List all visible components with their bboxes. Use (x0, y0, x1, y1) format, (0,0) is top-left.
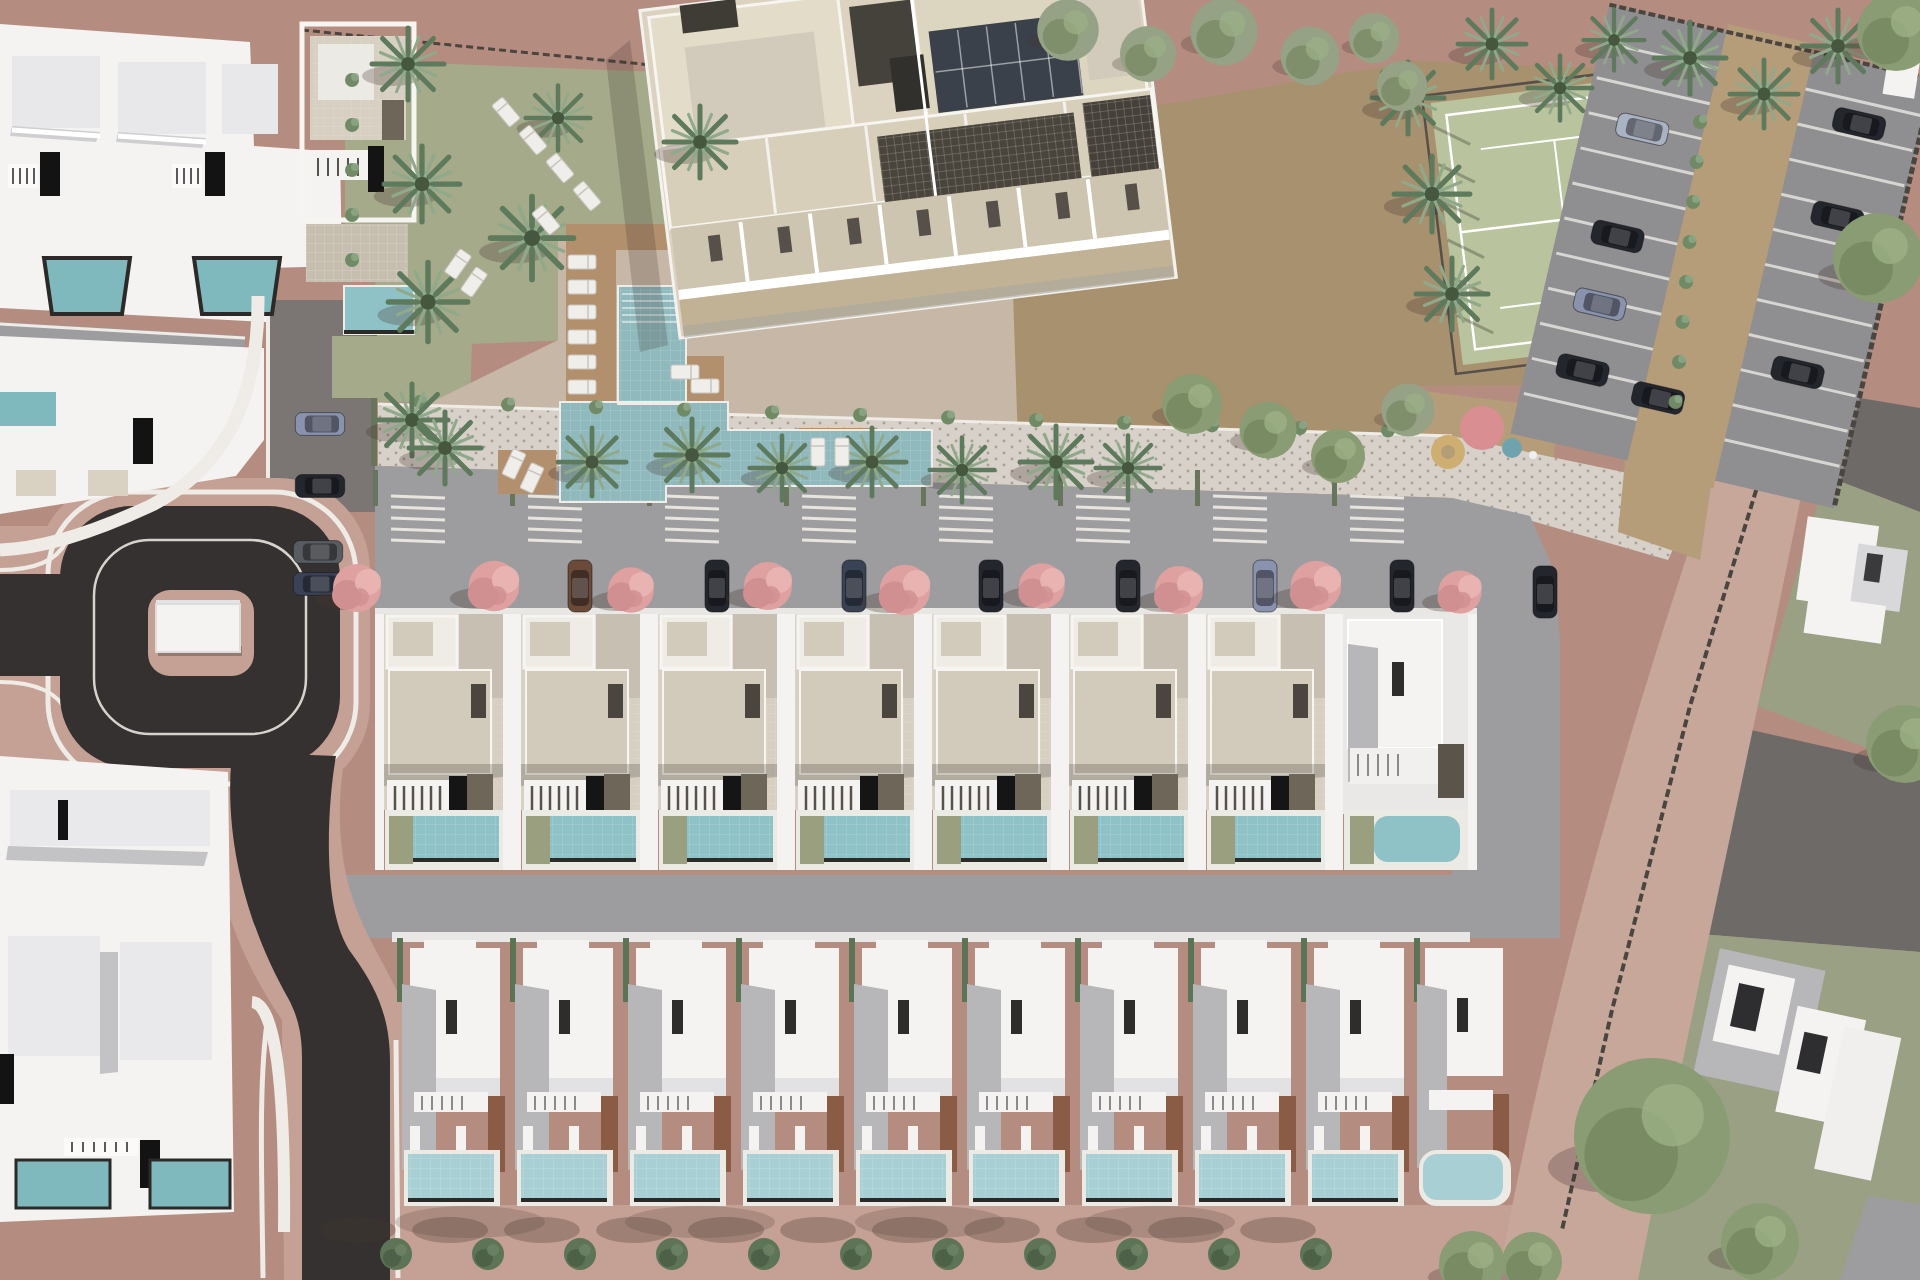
shrub-instance (345, 163, 359, 177)
treeS-instance (1208, 1238, 1240, 1270)
villaLower-instance (849, 938, 957, 1206)
villaLower-instance (962, 938, 1070, 1206)
treeS-instance (564, 1238, 596, 1270)
villaUpper-instance (786, 614, 923, 870)
car-instance (705, 560, 729, 612)
lounger-instance (671, 365, 699, 379)
villaUpper-instance (512, 614, 649, 870)
car-instance (295, 475, 344, 498)
shrub-instance (1669, 395, 1683, 409)
villaUpper-instance (923, 614, 1060, 870)
lower-villa-row (392, 932, 1511, 1206)
shrub-instance (1676, 315, 1690, 329)
lounger-instance (568, 280, 596, 294)
villaLower-instance (736, 938, 844, 1206)
lounger-instance (568, 355, 596, 369)
car-instance (1116, 560, 1140, 612)
shrub-instance (1679, 275, 1693, 289)
villaLower-instance (510, 938, 618, 1206)
treeS-instance (932, 1238, 964, 1270)
lounger-instance (691, 379, 719, 393)
treeS-instance (840, 1238, 872, 1270)
car-instance (1253, 560, 1277, 612)
villaUpper-instance (1197, 614, 1334, 870)
site-plan-image (0, 0, 1920, 1280)
shrub-instance (1672, 355, 1686, 369)
shrub-instance (765, 405, 779, 419)
upper-villa-row (375, 614, 1477, 870)
treeS-instance (472, 1238, 504, 1270)
treeS-instance (656, 1238, 688, 1270)
villaUpperEnd-instance (1334, 614, 1477, 870)
lounger-instance (568, 380, 596, 394)
apartment-building-body (640, 0, 1176, 338)
lounger-instance (568, 255, 596, 269)
lounger-instance (835, 438, 849, 466)
car-instance (1390, 560, 1414, 612)
treeS-instance (748, 1238, 780, 1270)
shrub-instance (677, 403, 691, 417)
car-instance (293, 541, 342, 564)
shrub-instance (1686, 195, 1700, 209)
shrub-instance (345, 73, 359, 87)
villaLower-instance (623, 938, 731, 1206)
lounger-instance (568, 330, 596, 344)
shrub-instance (345, 208, 359, 222)
villaUpper-instance (649, 614, 786, 870)
shrub-instance (1117, 416, 1131, 430)
car-instance (568, 560, 592, 612)
shrub-instance (853, 408, 867, 422)
villaUpper-instance (1060, 614, 1197, 870)
site-plan-rendering (0, 0, 1920, 1280)
treeS-instance (1024, 1238, 1056, 1270)
villaLower-instance (1188, 938, 1296, 1206)
villaUpper-instance (375, 614, 512, 870)
villaLower-instance (1301, 938, 1409, 1206)
lounger-instance (568, 305, 596, 319)
shrub-instance (941, 411, 955, 425)
villaLower-instance (397, 938, 505, 1206)
car-instance (1533, 566, 1557, 618)
lounger-instance (811, 438, 825, 466)
car-instance (979, 560, 1003, 612)
shrub-instance (1029, 413, 1043, 427)
shrub-instance (1683, 235, 1697, 249)
car-instance (295, 413, 344, 436)
treeS-instance (1116, 1238, 1148, 1270)
villaLowerEnd-instance (1414, 938, 1511, 1206)
treeS-instance (380, 1238, 412, 1270)
shrub-instance (345, 118, 359, 132)
treeS-instance (1300, 1238, 1332, 1270)
shrub-instance (1693, 115, 1707, 129)
shrub-instance (345, 253, 359, 267)
shrub-instance (501, 398, 515, 412)
villaLower-instance (1075, 938, 1183, 1206)
shrub-instance (589, 400, 603, 414)
shrub-instance (1690, 155, 1704, 169)
